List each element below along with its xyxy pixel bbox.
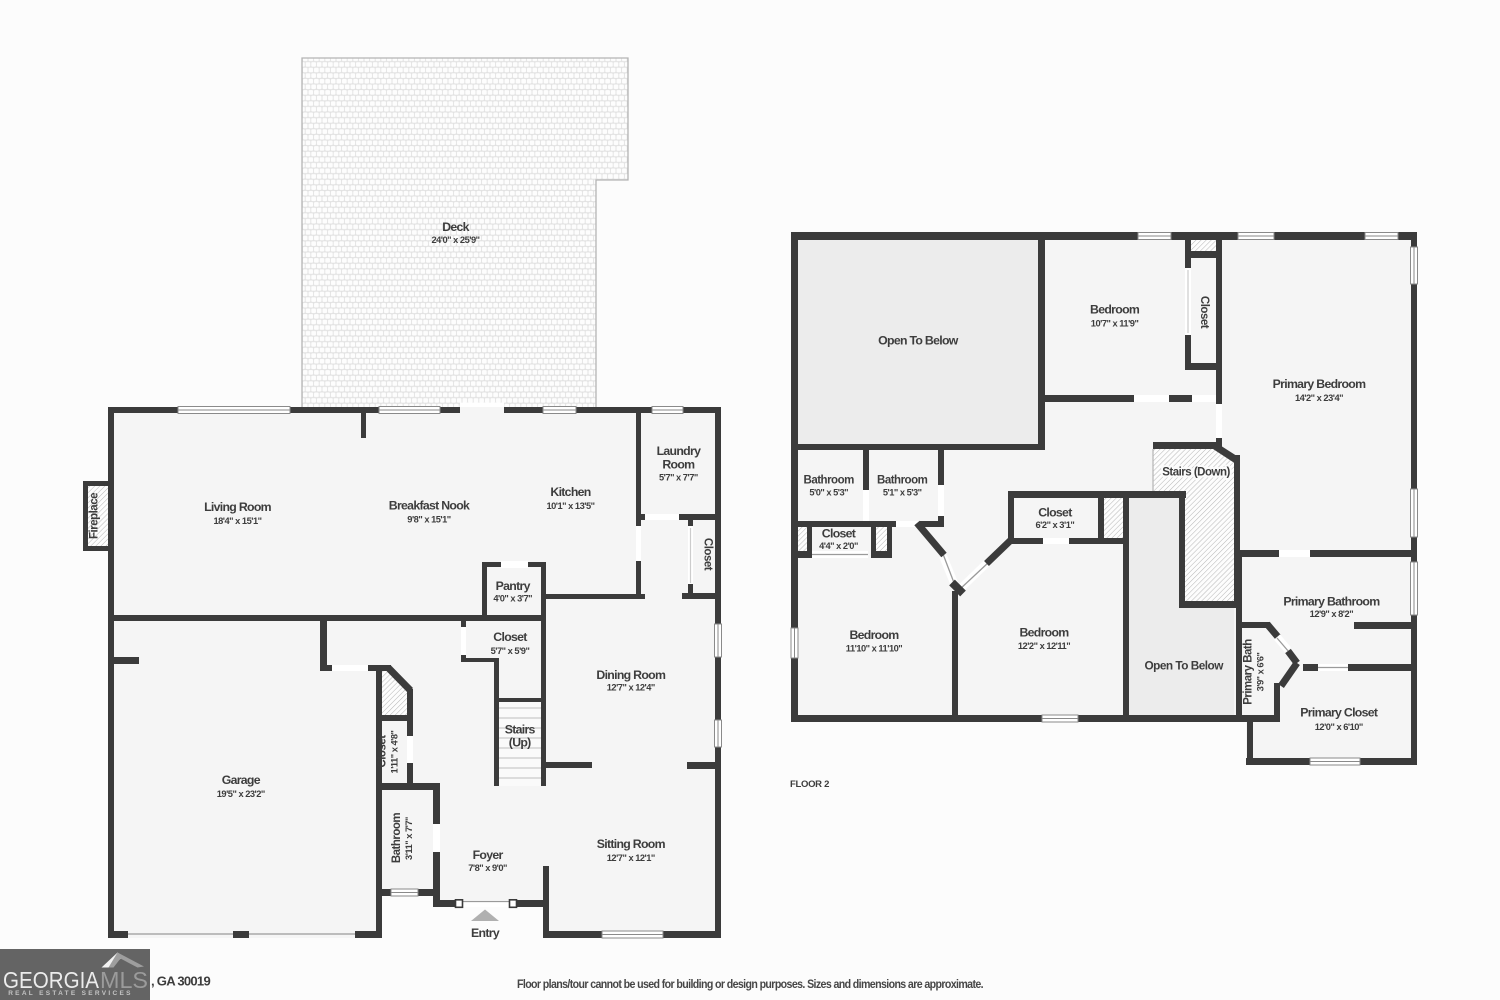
svg-text:5'1" x 5'3": 5'1" x 5'3" [883,488,922,498]
svg-text:Dining Room: Dining Room [596,668,666,682]
svg-text:Open To Below: Open To Below [878,334,959,348]
svg-text:Entry: Entry [471,926,500,940]
svg-text:Bedroom: Bedroom [1090,303,1140,317]
svg-text:Bathroom: Bathroom [877,475,928,487]
svg-text:19'5" x 23'2": 19'5" x 23'2" [217,789,265,799]
svg-text:9'8" x 15'1": 9'8" x 15'1" [407,515,451,525]
svg-text:FLOOR 2: FLOOR 2 [790,779,829,790]
svg-text:24'0" x 25'9": 24'0" x 25'9" [431,235,479,245]
svg-text:Closet: Closet [493,630,527,644]
svg-text:Bathroom: Bathroom [391,813,403,864]
svg-text:Bedroom: Bedroom [849,628,899,642]
svg-text:12'2" x 12'11": 12'2" x 12'11" [1018,641,1070,651]
svg-text:5'0" x 5'3": 5'0" x 5'3" [809,488,848,498]
svg-text:(Up): (Up) [509,736,531,750]
svg-text:Foyer: Foyer [473,848,504,862]
svg-text:12'7" x 12'1": 12'7" x 12'1" [607,853,655,863]
svg-text:Living Room: Living Room [204,500,272,514]
svg-text:Bathroom: Bathroom [804,475,855,487]
svg-text:Sitting Room: Sitting Room [597,837,666,851]
svg-text:Stairs (Down): Stairs (Down) [1162,467,1230,479]
svg-text:5'7" x 7'7": 5'7" x 7'7" [659,473,698,483]
svg-text:3'11" x 7'7": 3'11" x 7'7" [404,817,414,860]
svg-text:Breakfast Nook: Breakfast Nook [389,499,470,513]
svg-text:10'7" x 11'9": 10'7" x 11'9" [1091,319,1139,329]
svg-text:Bedroom: Bedroom [1019,626,1069,640]
svg-text:Stairs: Stairs [505,723,536,737]
svg-text:Open To Below: Open To Below [1144,659,1224,673]
svg-text:Primary Bath: Primary Bath [1243,639,1255,705]
svg-text:Primary Closet: Primary Closet [1300,706,1378,720]
svg-text:12'0" x 6'10": 12'0" x 6'10" [1315,722,1363,732]
svg-text:Kitchen: Kitchen [550,485,590,499]
svg-text:1'11" x 4'8": 1'11" x 4'8" [390,730,400,773]
svg-text:, GA 30019: , GA 30019 [151,975,211,989]
svg-text:18'4" x 15'1": 18'4" x 15'1" [213,516,261,526]
svg-text:Room: Room [662,458,695,472]
svg-text:3'9" x 6'6": 3'9" x 6'6" [1256,653,1266,692]
svg-text:Garage: Garage [222,773,261,787]
svg-text:4'4" x 2'0": 4'4" x 2'0" [819,541,858,551]
svg-text:6'2" x 3'1": 6'2" x 3'1" [1036,520,1075,530]
svg-text:REAL ESTATE SERVICES: REAL ESTATE SERVICES [8,990,133,997]
svg-text:Floor plans/tour cannot be use: Floor plans/tour cannot be used for buil… [517,977,983,991]
svg-text:5'7" x 5'9": 5'7" x 5'9" [491,646,530,656]
svg-text:Laundry: Laundry [657,444,701,458]
svg-text:12'9" x 8'2": 12'9" x 8'2" [1310,609,1354,619]
svg-text:Primary Bedroom: Primary Bedroom [1273,377,1366,391]
svg-text:Primary Bathroom: Primary Bathroom [1283,595,1380,609]
svg-text:Closet: Closet [1198,296,1210,329]
svg-text:7'8" x 9'0": 7'8" x 9'0" [468,863,507,873]
svg-text:Closet: Closet [377,735,389,768]
svg-text:Deck: Deck [442,220,469,234]
svg-text:12'7" x 12'4": 12'7" x 12'4" [607,683,655,693]
svg-text:10'1" x 13'5": 10'1" x 13'5" [546,501,594,511]
svg-text:Fireplace: Fireplace [89,493,101,539]
svg-text:Closet: Closet [822,527,856,541]
svg-text:4'0" x 3'7": 4'0" x 3'7" [493,594,532,604]
svg-text:Closet: Closet [702,538,714,571]
svg-text:11'10" x 11'10": 11'10" x 11'10" [846,644,903,654]
svg-text:14'2" x 23'4": 14'2" x 23'4" [1295,393,1343,403]
svg-text:Pantry: Pantry [496,579,531,593]
svg-text:Closet: Closet [1038,506,1072,520]
